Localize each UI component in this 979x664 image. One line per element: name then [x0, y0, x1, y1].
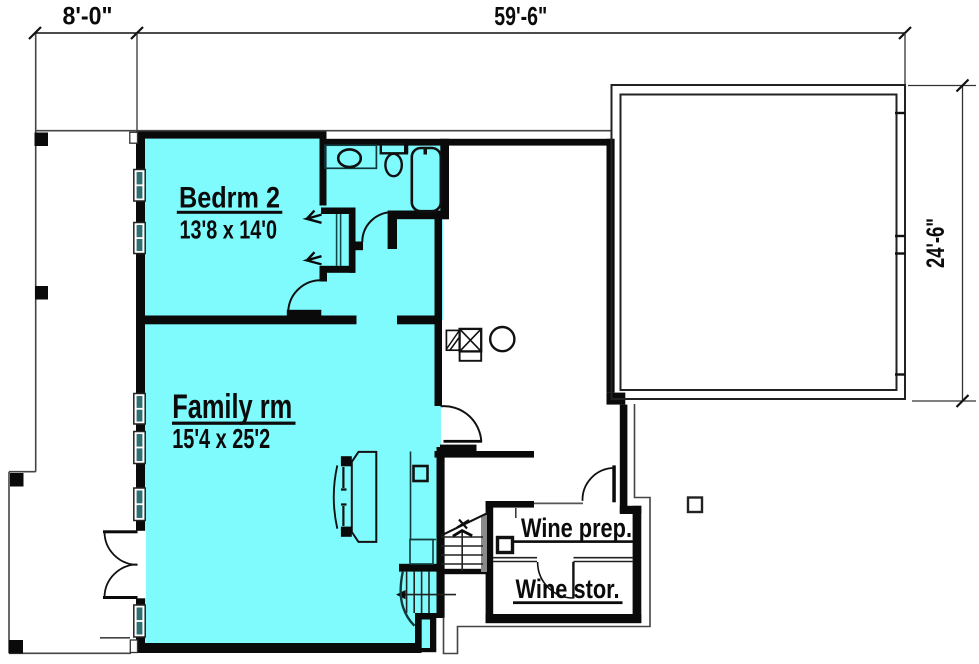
- svg-text:15'4 x 25'2: 15'4 x 25'2: [172, 423, 270, 454]
- svg-text:8'-0": 8'-0": [63, 3, 113, 31]
- svg-text:Wine prep.: Wine prep.: [521, 513, 632, 543]
- svg-text:59'-6": 59'-6": [494, 3, 547, 31]
- svg-text:Wine stor.: Wine stor.: [516, 574, 620, 604]
- svg-text:24'-6": 24'-6": [922, 218, 950, 268]
- svg-text:13'8 x 14'0: 13'8 x 14'0: [180, 215, 278, 245]
- svg-text:Family rm: Family rm: [172, 388, 292, 426]
- svg-text:Bedrm 2: Bedrm 2: [179, 182, 280, 215]
